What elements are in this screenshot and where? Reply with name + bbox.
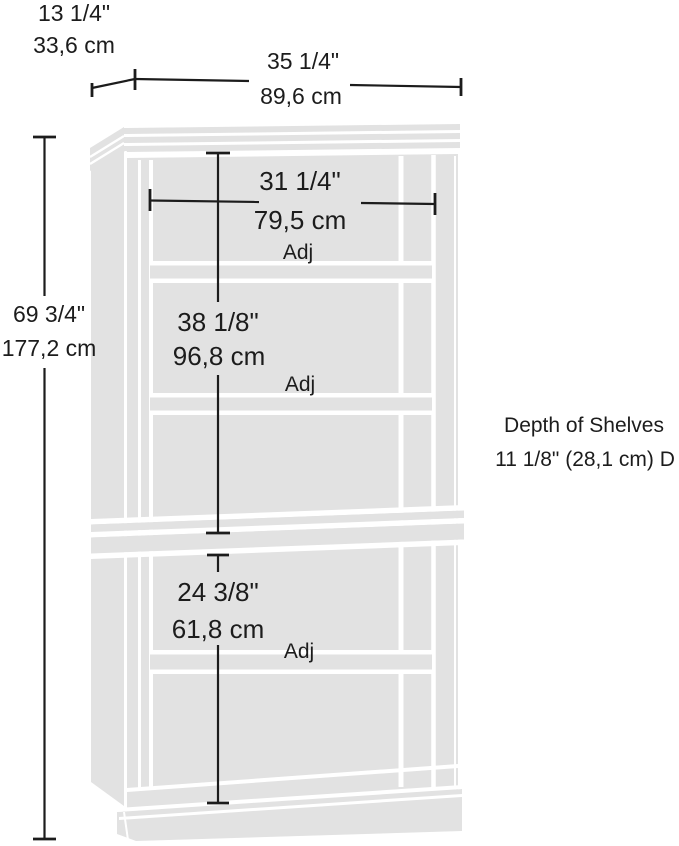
shelf-2-bottom-line xyxy=(150,411,432,416)
left-side-panel xyxy=(91,149,124,806)
shelf-1-front-edge xyxy=(150,266,432,279)
depth-dim-line xyxy=(92,79,135,88)
height-cm-label: 177,2 cm xyxy=(2,335,97,361)
adjustable-shelf-1 xyxy=(150,261,432,283)
interior-width-cm-label: 79,5 cm xyxy=(254,205,347,235)
depth-inches-label: 13 1/4" xyxy=(38,0,110,26)
crown-band-middle xyxy=(124,133,460,143)
width-dim-line-right xyxy=(350,85,461,87)
depth-note-line1: Depth of Shelves xyxy=(504,414,664,437)
interior-width-line-right xyxy=(361,203,435,204)
shelf-2-front-edge xyxy=(150,398,432,411)
width-dim-line-left xyxy=(135,79,249,81)
depth-note: Depth of Shelves 11 1/8" (28,1 cm) D xyxy=(495,414,675,471)
interior-width-line-left xyxy=(150,201,259,203)
depth-note-line2: 11 1/8" (28,1 cm) D xyxy=(495,448,675,471)
upper-height-cm-label: 96,8 cm xyxy=(173,341,266,371)
lower-height-cm-label: 61,8 cm xyxy=(172,614,265,644)
upper-height-inches-label: 38 1/8" xyxy=(177,307,259,337)
shelf-2-adj-label: Adj xyxy=(285,373,315,396)
bookcase-diagram-svg: 13 1/4" 33,6 cm 35 1/4" 89,6 cm 69 3/4" … xyxy=(0,0,679,846)
width-cm-label: 89,6 cm xyxy=(260,83,342,109)
shelf-3-adj-label: Adj xyxy=(284,640,314,663)
dim-depth-and-width: 13 1/4" 33,6 cm 35 1/4" 89,6 cm xyxy=(33,0,461,109)
depth-cm-label: 33,6 cm xyxy=(33,32,115,58)
shelf-1-bottom-line xyxy=(150,279,432,284)
width-inches-label: 35 1/4" xyxy=(267,48,339,74)
interior-width-inches-label: 31 1/4" xyxy=(259,166,341,196)
crown-band-bottom xyxy=(124,142,460,152)
shelf-3-bottom-line xyxy=(150,670,432,675)
dimension-diagram: 13 1/4" 33,6 cm 35 1/4" 89,6 cm 69 3/4" … xyxy=(0,0,679,846)
adjustable-shelf-2 xyxy=(150,393,432,415)
crown-band-top xyxy=(124,124,460,134)
lower-height-inches-label: 24 3/8" xyxy=(177,577,259,607)
height-inches-label: 69 3/4" xyxy=(13,301,85,327)
shelf-1-adj-label: Adj xyxy=(283,241,313,264)
dim-overall-height: 69 3/4" 177,2 cm xyxy=(2,137,97,839)
